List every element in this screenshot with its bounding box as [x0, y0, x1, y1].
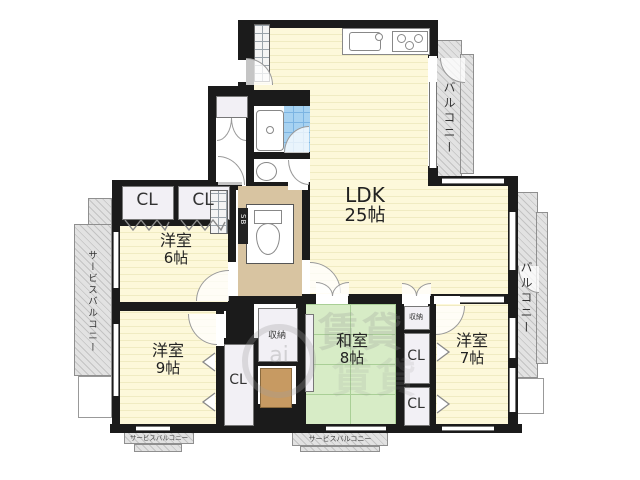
ldk-floor-upper: [310, 90, 428, 186]
door-gap: [302, 260, 310, 294]
window: [509, 212, 516, 270]
bifold-door-icon: [436, 394, 450, 414]
wall: [226, 296, 304, 304]
wall: [246, 90, 306, 98]
room-name-west7: 洋室: [442, 332, 502, 350]
wood-entry-floor: [260, 368, 292, 408]
service-balcony-label: サービスバルコニー: [84, 236, 98, 368]
wall: [246, 98, 308, 106]
room-label-ldk: LDK 25帖: [322, 184, 408, 227]
stove-burner: [397, 34, 406, 43]
wall: [226, 304, 254, 346]
shoe-box-label: SB: [239, 214, 247, 225]
floorplan: ai 賃貸 賃貸 LDK 25帖 洋室 6帖 洋室 9帖 和室 8帖 洋室 7帖…: [0, 0, 640, 480]
closet-label: CL: [404, 348, 428, 364]
service-balcony-label: サービスバルコニー: [124, 432, 194, 442]
service-balcony-left-stair: [78, 376, 112, 418]
window: [429, 82, 437, 168]
bifold-door-icon: [180, 219, 226, 231]
wall: [246, 152, 312, 159]
window: [136, 426, 170, 431]
closet-label: CL: [122, 190, 172, 210]
storage-label: 収納: [404, 312, 428, 322]
door-gap: [238, 60, 246, 82]
room-label-west9: 洋室 9帖: [138, 342, 198, 377]
room-name-ldk: LDK: [322, 184, 408, 206]
room-size-west9: 9帖: [138, 360, 198, 377]
service-balcony-label: サービスバルコニー: [292, 434, 388, 444]
window: [442, 178, 504, 184]
closet-label: CL: [178, 190, 228, 210]
north-hall-closet: [216, 96, 248, 118]
window: [326, 426, 386, 431]
door-gap: [434, 296, 460, 304]
stove-burner: [405, 41, 414, 50]
door-gap: [216, 314, 224, 346]
wall: [238, 20, 246, 62]
room-name-west9: 洋室: [138, 342, 198, 360]
room-size-west7: 7帖: [442, 350, 502, 367]
washitsu-sliding-panel: [305, 314, 314, 392]
balcony-label: バルコニー: [518, 236, 535, 360]
room-label-washitsu: 和室 8帖: [320, 332, 384, 367]
room-size-ldk: 25帖: [322, 206, 408, 226]
closet-label: CL: [404, 396, 428, 412]
door-gap: [228, 262, 236, 296]
room-size-west6: 6帖: [146, 250, 206, 267]
room-size-washitsu: 8帖: [320, 350, 384, 367]
room-name-washitsu: 和室: [320, 332, 384, 350]
window: [442, 426, 494, 431]
balcony-label: バルコニー: [441, 64, 458, 172]
window: [113, 232, 119, 288]
bifold-door-icon: [124, 219, 170, 231]
bifold-door-icon: [202, 352, 216, 372]
wall: [396, 304, 404, 433]
window: [113, 324, 119, 396]
room-label-west7: 洋室 7帖: [442, 332, 502, 367]
room-name-west6: 洋室: [146, 232, 206, 250]
kitchen-faucet: [375, 33, 383, 41]
stove-burner: [414, 34, 423, 43]
storage-label: 収納: [258, 328, 296, 341]
wall: [112, 302, 236, 311]
room-label-west6: 洋室 6帖: [146, 232, 206, 267]
wash-basin: [256, 162, 277, 181]
closet-label: CL: [224, 372, 252, 388]
door-gap: [429, 56, 437, 82]
bifold-door-icon: [202, 392, 216, 412]
service-balcony-bottom-left-step: [134, 444, 182, 452]
service-balcony-bottom-right-step: [300, 446, 380, 452]
window: [509, 318, 516, 358]
window: [509, 368, 516, 412]
toilet-tank: [254, 210, 282, 224]
bathtub-drain: [266, 126, 274, 134]
